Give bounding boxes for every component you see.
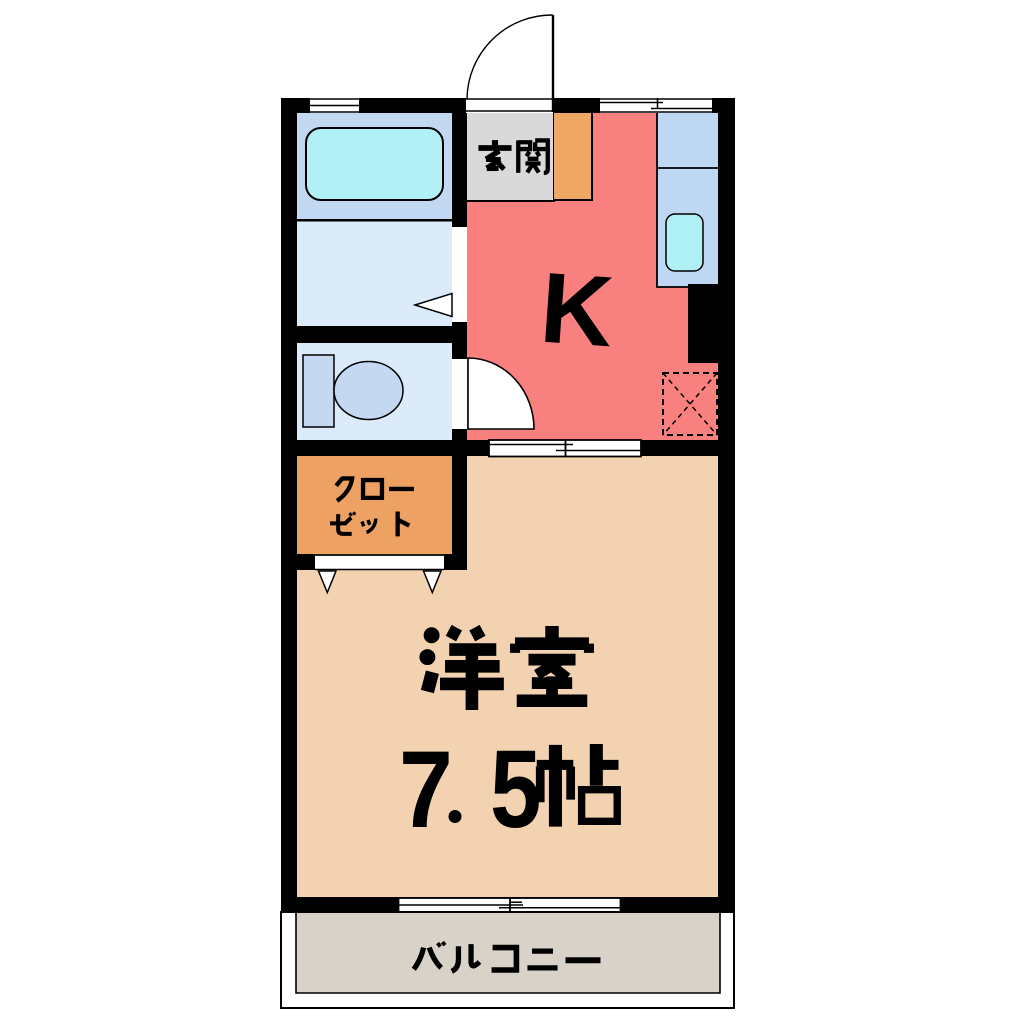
- svg-text:7: 7: [399, 727, 453, 850]
- svg-text:5: 5: [490, 727, 541, 850]
- svg-text:K: K: [537, 252, 617, 369]
